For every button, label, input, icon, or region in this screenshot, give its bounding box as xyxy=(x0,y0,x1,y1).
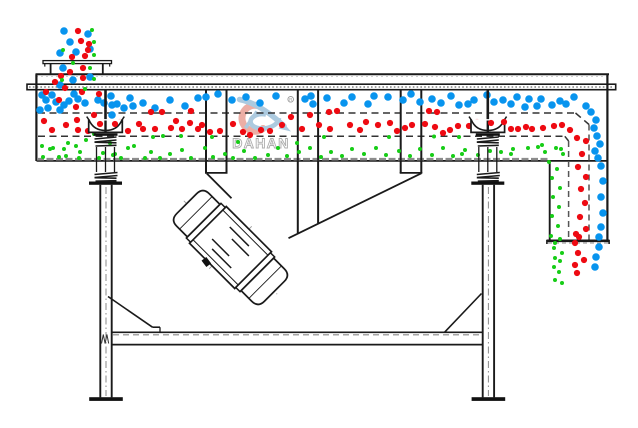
svg-text:DAHAN: DAHAN xyxy=(232,135,290,151)
svg-text:R: R xyxy=(289,97,292,102)
